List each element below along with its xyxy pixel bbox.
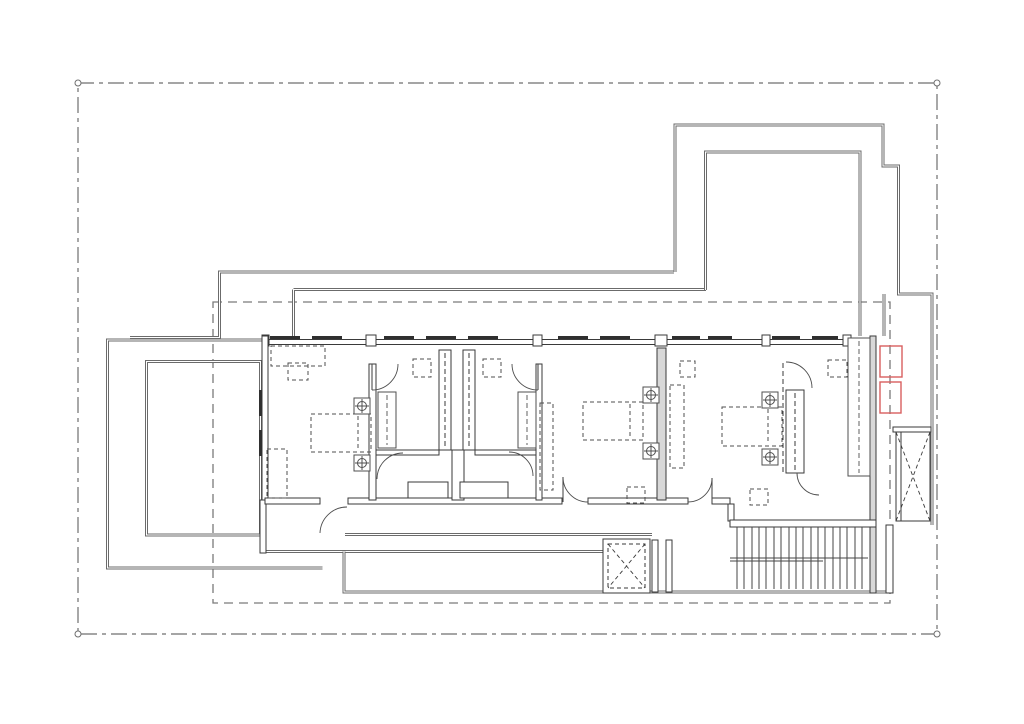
door-swing bbox=[512, 364, 538, 390]
elevator-shaft bbox=[893, 427, 931, 521]
window-sill-tick bbox=[270, 336, 300, 339]
bath-counter bbox=[460, 482, 508, 498]
corner-marker bbox=[75, 631, 81, 637]
bed-3 bbox=[722, 407, 782, 446]
red-highlight-marker bbox=[880, 346, 902, 377]
exterior-wall-southwest bbox=[260, 500, 266, 553]
window-post bbox=[762, 335, 770, 346]
door-swing bbox=[688, 478, 712, 502]
left-terrace-parapet bbox=[147, 362, 261, 536]
furniture bbox=[267, 338, 870, 505]
south-wall-segment bbox=[712, 498, 730, 504]
partition-bedroom2-3 bbox=[657, 348, 666, 500]
south-wall-segment bbox=[588, 498, 688, 504]
nightstand bbox=[483, 359, 501, 377]
lamp-icons bbox=[354, 387, 778, 471]
roof-edge-upper-left bbox=[130, 272, 674, 338]
window-sill-tick bbox=[672, 336, 700, 339]
door-swing bbox=[320, 507, 347, 533]
window-sill-tick bbox=[426, 336, 456, 339]
nightstand bbox=[413, 359, 431, 377]
window-sill-tick bbox=[600, 336, 630, 339]
door-swing bbox=[563, 477, 588, 502]
bedside-lamp-icon bbox=[643, 443, 659, 459]
bed-1 bbox=[311, 414, 371, 452]
nightstand bbox=[828, 360, 847, 377]
partition-bedroom2 bbox=[536, 364, 542, 500]
window-sill-tick bbox=[384, 336, 414, 339]
window-sill-tick bbox=[708, 336, 732, 339]
red-highlight-markers bbox=[880, 346, 902, 413]
bedside-lamp-icon bbox=[354, 455, 370, 471]
stair-top-wall bbox=[730, 520, 876, 527]
staircase bbox=[730, 527, 868, 589]
west-window-tick bbox=[259, 390, 262, 416]
floor-plan-canvas bbox=[0, 0, 1024, 724]
wardrobe-dashed bbox=[267, 449, 287, 498]
suite-wall-h bbox=[475, 450, 536, 455]
stair-outer-wall bbox=[886, 525, 893, 593]
roof-edge-mid bbox=[294, 290, 707, 337]
floor-plan-page bbox=[0, 0, 1024, 724]
bed-2 bbox=[583, 402, 643, 440]
door-swing bbox=[509, 452, 533, 476]
window-post bbox=[533, 335, 542, 346]
door-swing bbox=[377, 453, 403, 479]
skylight-shaft bbox=[603, 539, 672, 593]
door-swing bbox=[797, 473, 819, 495]
window-sill-tick bbox=[812, 336, 838, 339]
corner-marker bbox=[934, 631, 940, 637]
exterior-wall-west bbox=[262, 336, 268, 501]
south-wall-step bbox=[728, 504, 734, 521]
window-sill-tick bbox=[772, 336, 800, 339]
roof-edges bbox=[130, 125, 932, 525]
bedside-lamp-icon bbox=[643, 387, 659, 403]
window-sill-tick bbox=[312, 336, 342, 339]
upper-terrace-inner-wall bbox=[706, 152, 861, 336]
left-terrace bbox=[108, 340, 894, 592]
bath-counter bbox=[408, 482, 448, 498]
south-wall-segment bbox=[265, 498, 320, 504]
west-window-tick bbox=[259, 430, 262, 456]
window-sill-tick bbox=[468, 336, 498, 339]
window-post bbox=[366, 335, 376, 346]
wardrobe-dashed bbox=[670, 385, 684, 468]
property-boundary bbox=[75, 80, 940, 637]
corner-marker bbox=[75, 80, 81, 86]
suite-wall-h bbox=[376, 450, 439, 455]
exterior-wall-east bbox=[870, 336, 876, 593]
nightstand bbox=[680, 361, 695, 377]
bedside-lamp-icon bbox=[762, 392, 778, 408]
window-sill-tick bbox=[558, 336, 588, 339]
bedside-lamp-icon bbox=[354, 398, 370, 414]
bedside-lamp-icon bbox=[762, 449, 778, 465]
window-post bbox=[655, 335, 667, 346]
nightstand bbox=[750, 489, 768, 505]
door-swing bbox=[786, 362, 812, 388]
corner-marker bbox=[934, 80, 940, 86]
